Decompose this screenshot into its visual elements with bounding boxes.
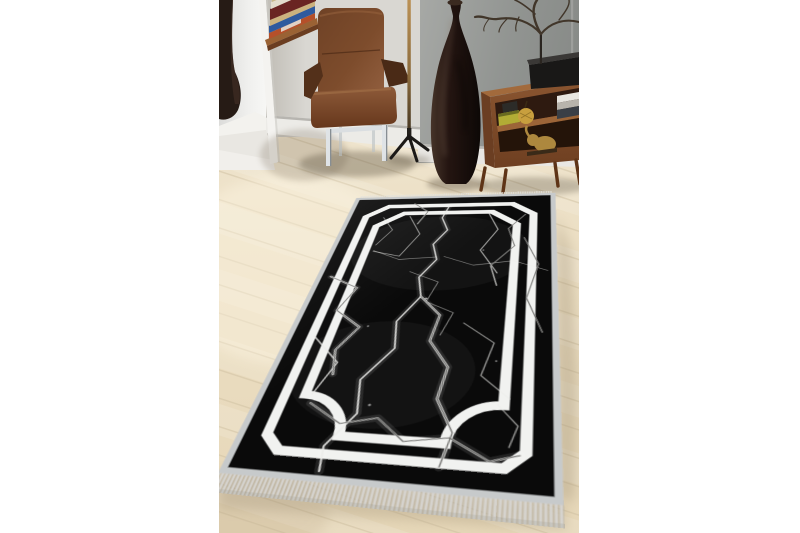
product-photo[interactable] (219, 0, 579, 533)
screenshot-canvas (0, 0, 800, 533)
